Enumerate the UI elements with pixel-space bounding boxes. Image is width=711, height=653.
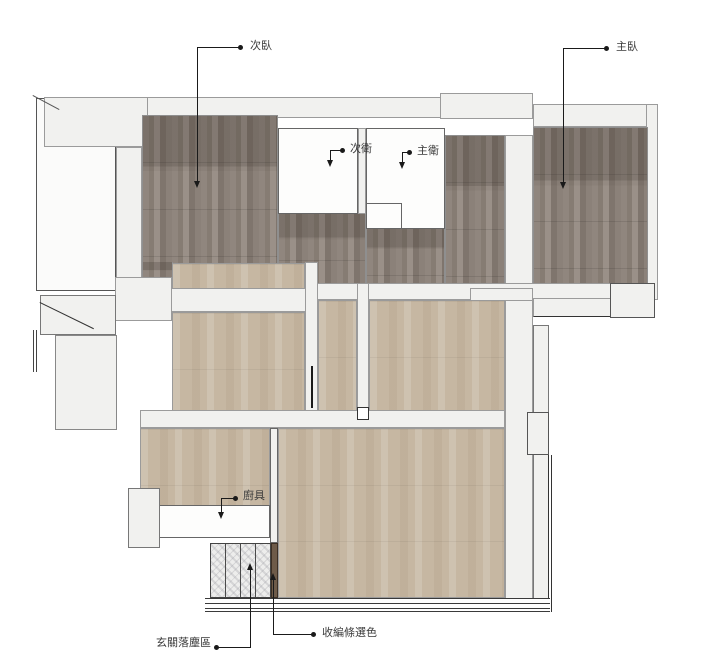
floor-dining-right [369, 300, 505, 412]
closet-top-left [44, 97, 148, 147]
room-secondary-bathroom [278, 128, 358, 214]
label-secondary-bedroom: 次臥 [250, 40, 272, 53]
leader-line [218, 647, 251, 648]
leader-line [563, 48, 564, 184]
wall-bath-divider [358, 128, 366, 214]
wall-lower-band [140, 410, 505, 428]
wall-left-outer-line [33, 330, 37, 372]
leader-line [273, 634, 313, 635]
leader-dot [233, 496, 238, 501]
wall-kitchen-divider [270, 428, 278, 543]
leader-dot [238, 45, 243, 50]
arrow-down-icon [399, 162, 405, 169]
wall-left-lower-step [40, 295, 116, 335]
door-swing-line [311, 366, 313, 408]
wall-right-outer-line [548, 455, 552, 612]
leader-line [197, 47, 198, 183]
wall-left-lower [55, 335, 117, 430]
floor-living [278, 428, 505, 598]
leader-dot [311, 632, 316, 637]
bath-step-line [366, 203, 402, 228]
arrow-down-icon [327, 160, 333, 167]
leader-dot [604, 46, 609, 51]
arrow-down-icon [194, 181, 200, 188]
floor-dining-center [318, 300, 357, 412]
label-master-bedroom: 主臥 [616, 41, 638, 54]
floor-beige-upper-band [172, 263, 305, 289]
wall-bottom-band [205, 598, 550, 612]
arrow-up-icon [247, 563, 253, 570]
label-master-bathroom: 主衛 [417, 145, 439, 158]
wall-left-strip [116, 147, 142, 290]
floor-entry-tiles [210, 543, 271, 598]
wall-strip-b [357, 283, 369, 420]
label-kitchen-unit: 廚具 [243, 490, 265, 503]
label-entry-dust-zone: 玄關落塵區 [156, 637, 211, 650]
label-secondary-bathroom: 次衛 [350, 143, 372, 156]
leader-line [563, 48, 607, 49]
arrow-up-icon [270, 573, 276, 580]
leader-dot [340, 148, 345, 153]
wall-top-band-right [533, 104, 657, 127]
wall-right-corner-block [610, 283, 655, 318]
closet-mid-left [115, 277, 172, 321]
leader-line [273, 579, 274, 635]
arrow-down-icon [218, 512, 224, 519]
kitchen-counter [158, 505, 270, 538]
leader-line [197, 47, 241, 48]
wall-right-lower [533, 325, 549, 610]
leader-line [250, 569, 251, 648]
wall-top-step [440, 93, 533, 119]
floor-dining-left [172, 312, 305, 411]
leader-dot [214, 645, 219, 650]
wall-strip-b-end [357, 407, 369, 420]
floor-secondary-bedroom [142, 115, 278, 265]
label-edge-trim-color: 收編條選色 [322, 627, 377, 640]
leader-dot [407, 150, 412, 155]
floor-hall-right-wrap [445, 135, 505, 284]
wall-kitchen-left-block [128, 488, 160, 548]
floor-hall-under-master-bath [366, 228, 445, 284]
wall-right-notch [527, 412, 549, 455]
wall-rail-under-master [533, 298, 613, 317]
arrow-down-icon [560, 182, 566, 189]
floor-plan-canvas: 次臥 主臥 次衛 主衛 廚具 玄關落塵區 [0, 0, 711, 653]
floor-master-bedroom [533, 127, 648, 284]
